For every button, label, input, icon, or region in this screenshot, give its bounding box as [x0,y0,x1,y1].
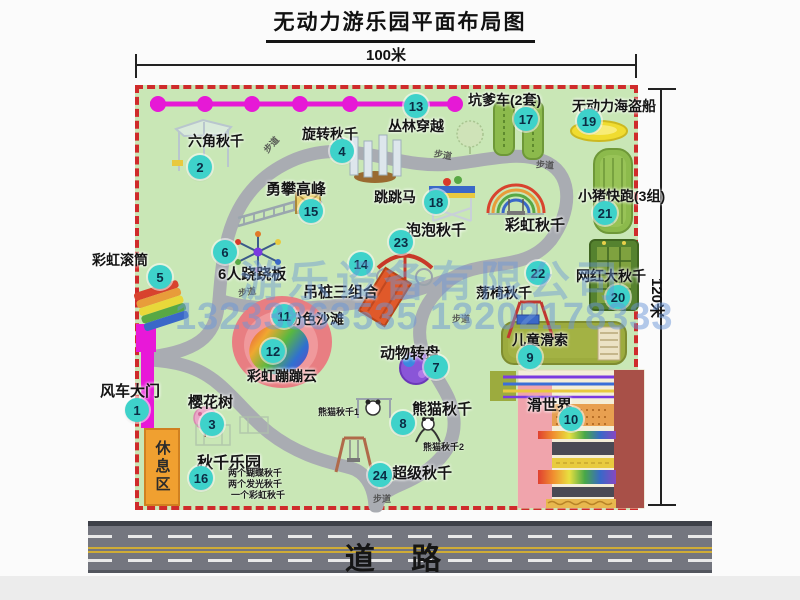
road-label: 道 路 [88,534,712,578]
dimension-label-right: 120米 [647,278,668,318]
park-area [135,85,638,510]
dimension-tick-right-bottom [648,504,676,506]
park-layout-map: 无动力游乐园平面布局图 100米 120米 [0,0,800,600]
dimension-tick-right-top [648,88,676,90]
dimension-tick-top-right [635,54,637,78]
rest-area: 休息区 [144,428,180,506]
road: 道 路 [88,521,712,573]
dimension-tick-top-left [135,54,137,78]
page-title: 无动力游乐园平面布局图 [0,6,800,43]
sidewalk-strip [0,576,800,600]
dimension-label-top: 100米 [366,44,406,65]
